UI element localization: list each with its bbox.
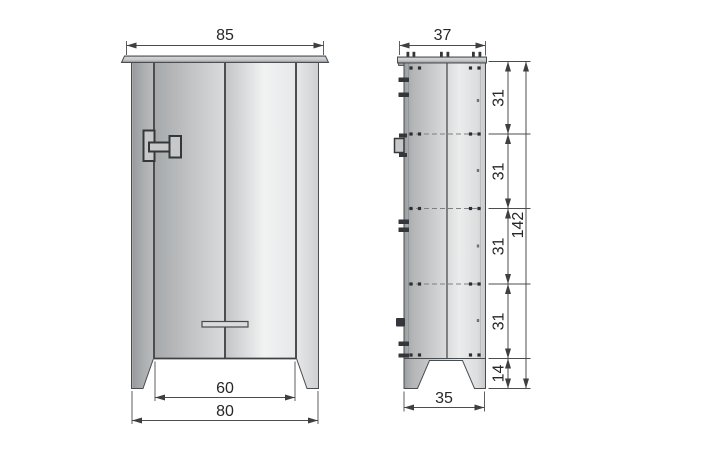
screw-dot (418, 66, 421, 69)
foot-height-label: 14 (491, 365, 508, 383)
side-view: 37 (395, 27, 531, 412)
side-top-depth-label: 37 (434, 27, 452, 44)
shelf-spacing-label-4: 31 (491, 313, 508, 331)
screw-dot (409, 282, 412, 285)
front-base-width-label: 80 (216, 403, 234, 420)
panel-mark (477, 245, 479, 248)
screw-dot (418, 282, 421, 285)
front-right-stile-leg (297, 63, 319, 389)
side-panel-body (404, 63, 486, 359)
side-latch-handle (395, 139, 405, 153)
screw-dot (409, 132, 412, 135)
front-right-door (226, 63, 296, 359)
screw-dot (469, 66, 472, 69)
front-top-board (122, 56, 329, 63)
screw-dot (477, 353, 480, 356)
front-top-width-label: 85 (216, 27, 234, 44)
side-top-board (398, 57, 487, 63)
hinge-mark (399, 354, 410, 358)
drawing-canvas: 85 60 80 (0, 0, 720, 470)
screw-dot (477, 132, 480, 135)
total-height-label: 142 (510, 212, 527, 239)
front-top-width-dimension: 85 (127, 27, 324, 55)
dowel-tab (413, 52, 416, 57)
screw-dot (469, 132, 472, 135)
screw-dot (409, 207, 412, 210)
screw-dot (409, 66, 412, 69)
dowel-tab (440, 52, 443, 57)
cabinet-technical-drawing: 85 60 80 (0, 0, 720, 470)
side-top-board-lip (399, 63, 405, 66)
shelf-spacing-label-1: 31 (491, 89, 508, 107)
hinge-mark (399, 78, 410, 83)
screw-dot (477, 66, 480, 69)
side-top-depth-dimension: 37 (400, 27, 486, 56)
screw-dot (469, 207, 472, 210)
side-base-depth-label: 35 (435, 390, 453, 407)
screw-dot (418, 353, 421, 356)
latch-grip (170, 136, 182, 158)
screw-dot (409, 353, 412, 356)
front-inner-base-dimension: 60 (155, 362, 295, 402)
dowel-tab (479, 52, 482, 57)
screw-dot (418, 132, 421, 135)
front-bottom-latch-bar (202, 322, 248, 328)
hinge-mark (399, 220, 410, 225)
hinge-mark (399, 228, 410, 233)
screw-dot (469, 353, 472, 356)
screw-dot (418, 207, 421, 210)
panel-mark (477, 99, 479, 102)
dowel-tab (447, 52, 450, 57)
front-view: 85 60 80 (122, 27, 329, 424)
latch-mark (396, 318, 405, 327)
screw-dot (477, 282, 480, 285)
hinge-mark (399, 342, 410, 347)
front-left-stile-leg (132, 63, 154, 389)
side-legs-with-cutout (404, 359, 486, 389)
screw-dot (469, 282, 472, 285)
front-inner-base-width-label: 60 (216, 380, 234, 397)
latch-mark (399, 153, 407, 157)
panel-mark (477, 319, 479, 322)
shelf-spacing-label-3: 31 (491, 238, 508, 256)
latch-mark (399, 134, 407, 138)
front-left-door (155, 63, 225, 359)
side-base-depth-dimension: 35 (404, 390, 485, 412)
screw-dot (477, 207, 480, 210)
hinge-mark (399, 93, 410, 98)
dowel-tab (472, 52, 475, 57)
dowel-tab (407, 52, 410, 57)
side-height-dimension-chain: 31 31 31 31 14 142 (489, 62, 531, 389)
side-dowel-tabs (407, 52, 482, 57)
shelf-spacing-label-2: 31 (491, 163, 508, 181)
panel-mark (477, 169, 479, 172)
